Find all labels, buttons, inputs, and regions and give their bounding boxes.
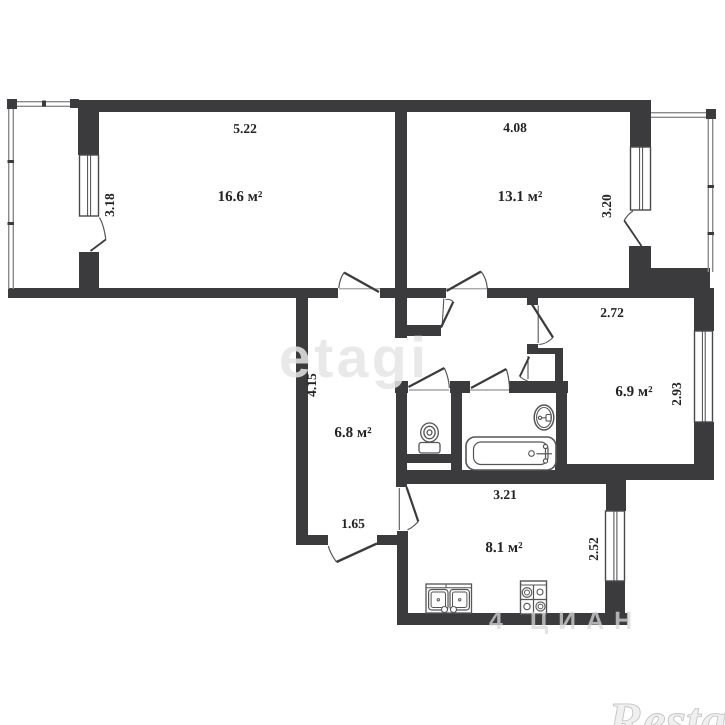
svg-text:4 ЦИАН: 4 ЦИАН bbox=[489, 607, 642, 635]
svg-text:Restate: Restate bbox=[607, 693, 725, 725]
svg-text:6.9 м²: 6.9 м² bbox=[615, 384, 653, 400]
svg-text:8.1 м²: 8.1 м² bbox=[485, 540, 523, 556]
svg-text:4.08: 4.08 bbox=[503, 120, 527, 135]
svg-text:2.52: 2.52 bbox=[586, 537, 601, 561]
svg-text:2.72: 2.72 bbox=[600, 305, 624, 320]
svg-text:5.22: 5.22 bbox=[233, 121, 257, 136]
svg-text:etagi: etagi bbox=[279, 326, 430, 390]
svg-text:4.15: 4.15 bbox=[304, 373, 319, 397]
svg-text:3.21: 3.21 bbox=[493, 487, 517, 502]
svg-text:2.93: 2.93 bbox=[669, 382, 684, 406]
svg-text:6.8 м²: 6.8 м² bbox=[334, 425, 372, 441]
svg-text:13.1 м²: 13.1 м² bbox=[498, 189, 543, 205]
svg-text:3.20: 3.20 bbox=[599, 194, 614, 218]
svg-text:1.65: 1.65 bbox=[341, 516, 365, 531]
svg-text:3.18: 3.18 bbox=[102, 193, 117, 217]
svg-text:16.6 м²: 16.6 м² bbox=[218, 189, 263, 205]
